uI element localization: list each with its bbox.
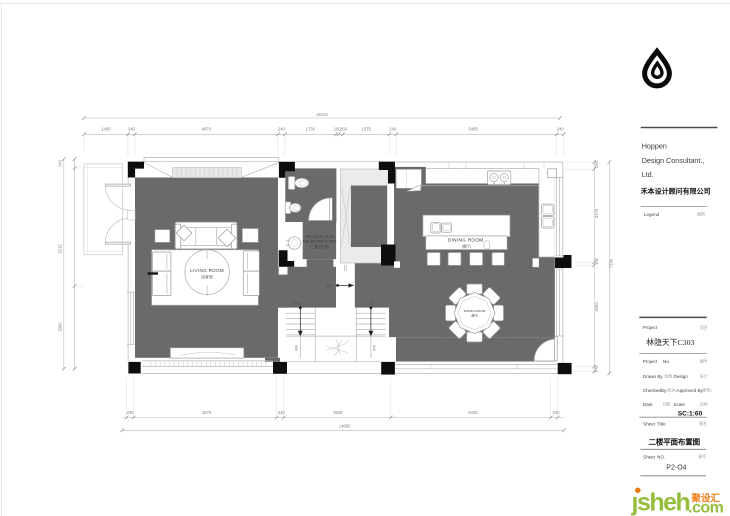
svg-text:1490: 1490 [101,127,111,132]
svg-text:Ltd.: Ltd. [642,170,654,179]
svg-text:THE TOILET IS ON: THE TOILET IS ON [305,235,334,239]
svg-text:(审核): (审核) [702,388,713,393]
svg-text:比例: 比例 [700,402,708,407]
svg-text:840: 840 [372,345,376,351]
svg-text:图号: 图号 [699,454,707,459]
svg-text:绘图: 绘图 [665,374,673,379]
svg-text:1575: 1575 [362,127,372,132]
svg-text:LIVING ROOM: LIVING ROOM [190,268,224,273]
svg-text:图例: 图例 [697,212,705,217]
svg-text:240: 240 [278,127,286,132]
svg-text:Approved By: Approved By [677,388,704,393]
svg-text:Project: Project [643,325,658,330]
svg-text:.com: .com [688,500,724,516]
svg-text:3450: 3450 [594,302,599,312]
svg-text:3170: 3170 [594,208,599,218]
svg-text:1730: 1730 [306,127,316,132]
svg-text:7190: 7190 [609,258,614,268]
svg-text:禾本设计顾问有限公司: 禾本设计顾问有限公司 [641,186,711,195]
svg-text:240: 240 [127,410,135,415]
svg-text:240: 240 [58,159,63,167]
svg-text:3215: 3215 [58,244,63,254]
svg-text:240: 240 [553,410,561,415]
svg-text:Project: Project [643,359,658,364]
svg-text:5465: 5465 [469,127,479,132]
svg-text:项目: 项目 [700,325,708,330]
svg-text:日期: 日期 [663,402,671,407]
svg-text:林隐天下C303: 林隐天下C303 [646,337,694,347]
svg-text:(餐厅): (餐厅) [462,243,471,248]
svg-text:150: 150 [340,127,348,132]
svg-text:240: 240 [278,410,286,415]
svg-text:3645: 3645 [333,410,343,415]
svg-text:5445: 5445 [468,410,478,415]
svg-text:240: 240 [128,127,136,132]
svg-text:3390: 3390 [58,322,63,332]
svg-text:Title: Title [657,421,666,426]
svg-text:240: 240 [389,127,397,132]
svg-text:B085: B085 [293,301,302,305]
svg-text:240: 240 [594,160,599,168]
svg-text:Sheet: Sheet [643,454,656,459]
svg-text:Hoppen: Hoppen [642,141,667,150]
svg-text:4870: 4870 [202,127,212,132]
svg-text:16210: 16210 [316,112,328,117]
svg-text:Sheet: Sheet [643,421,656,426]
svg-text:Scale: Scale [674,402,686,407]
svg-text:1F: 1F [369,301,374,305]
svg-text:(会客室): (会客室) [201,274,213,279]
svg-text:NO.: NO. [657,454,665,459]
svg-text:14680: 14680 [339,424,351,429]
svg-text:100: 100 [594,257,599,265]
svg-text:二楼平面布置图: 二楼平面布置图 [649,436,701,446]
svg-text:DINING ROOM: DINING ROOM [448,237,484,242]
svg-text:240: 240 [557,127,565,132]
svg-text:P2-O4: P2-O4 [666,465,686,472]
svg-text:Drawn By: Drawn By [643,374,664,379]
svg-text:Design: Design [674,374,689,379]
svg-text:(二楼卫生间): (二楼卫生间) [310,244,329,249]
svg-text:Legend: Legend [644,212,660,217]
svg-text:No.: No. [663,359,670,364]
svg-text:Date: Date [643,402,653,407]
svg-text:(餐厅): (餐厅) [471,314,479,318]
svg-text:1F: 1F [327,283,332,288]
svg-text:4870: 4870 [202,410,212,415]
svg-text:CheckedBy: CheckedBy [643,388,667,393]
svg-text:编号: 编号 [700,359,708,364]
svg-text:Design Consultant.,: Design Consultant., [642,156,705,165]
svg-text:SC:1:60: SC:1:60 [678,410,703,417]
svg-text:800: 800 [294,345,298,351]
svg-text:图名: 图名 [699,421,707,426]
svg-text:设计: 设计 [700,374,708,379]
svg-text:175: 175 [594,365,599,373]
svg-text:THE SECOND FLOOR: THE SECOND FLOOR [302,240,337,244]
svg-text:DINING ROOM: DINING ROOM [464,309,486,313]
